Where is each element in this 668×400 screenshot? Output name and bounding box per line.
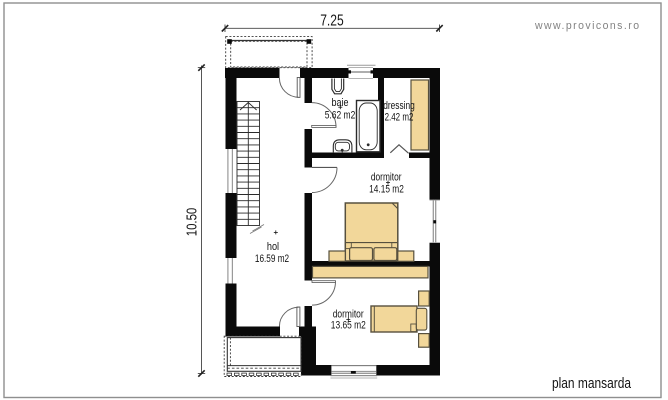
svg-text:2.42 m2: 2.42 m2 (385, 111, 414, 123)
svg-text:5.62 m2: 5.62 m2 (325, 109, 356, 121)
svg-text:13.65 m2: 13.65 m2 (331, 320, 366, 332)
svg-text:www.provicons.ro: www.provicons.ro (534, 20, 640, 32)
svg-text:hol: hol (267, 241, 279, 253)
svg-text:dormitor: dormitor (371, 172, 402, 184)
svg-text:7.25: 7.25 (320, 13, 344, 30)
svg-text:14.15 m2: 14.15 m2 (369, 184, 404, 196)
svg-text:plan mansarda: plan mansarda (552, 375, 632, 392)
svg-text:dressing: dressing (383, 100, 415, 112)
svg-text:16.59 m2: 16.59 m2 (255, 253, 289, 265)
svg-text:10.50: 10.50 (183, 208, 200, 237)
